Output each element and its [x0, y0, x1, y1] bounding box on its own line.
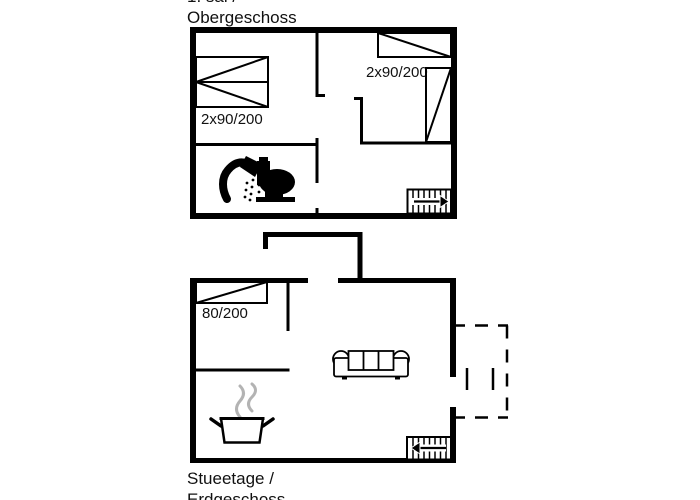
ground-floor-plan [190, 232, 508, 463]
stairs-icon-arrow-right [408, 190, 452, 214]
upper-floor-plan [193, 30, 454, 216]
single-bed-icon-ground [196, 282, 267, 303]
floorplan-page: 1. sal /Obergeschoss 2x90/200 2x90/200 8… [0, 0, 700, 500]
floorplan-drawing [0, 0, 700, 500]
cooking-pot-icon [211, 384, 273, 443]
toilet-icon [256, 157, 295, 202]
terrace-dashed-outline [452, 326, 508, 420]
sofa-icon [333, 351, 409, 380]
single-bed-icon-right [426, 68, 451, 142]
stairs-icon-arrow-left [407, 437, 451, 460]
single-bed-icon-top [378, 33, 451, 57]
entrance-porch-walls [263, 232, 362, 281]
steam-wisps [237, 384, 256, 417]
upper-interior-walls [195, 33, 452, 214]
double-bed-icon [196, 57, 268, 107]
